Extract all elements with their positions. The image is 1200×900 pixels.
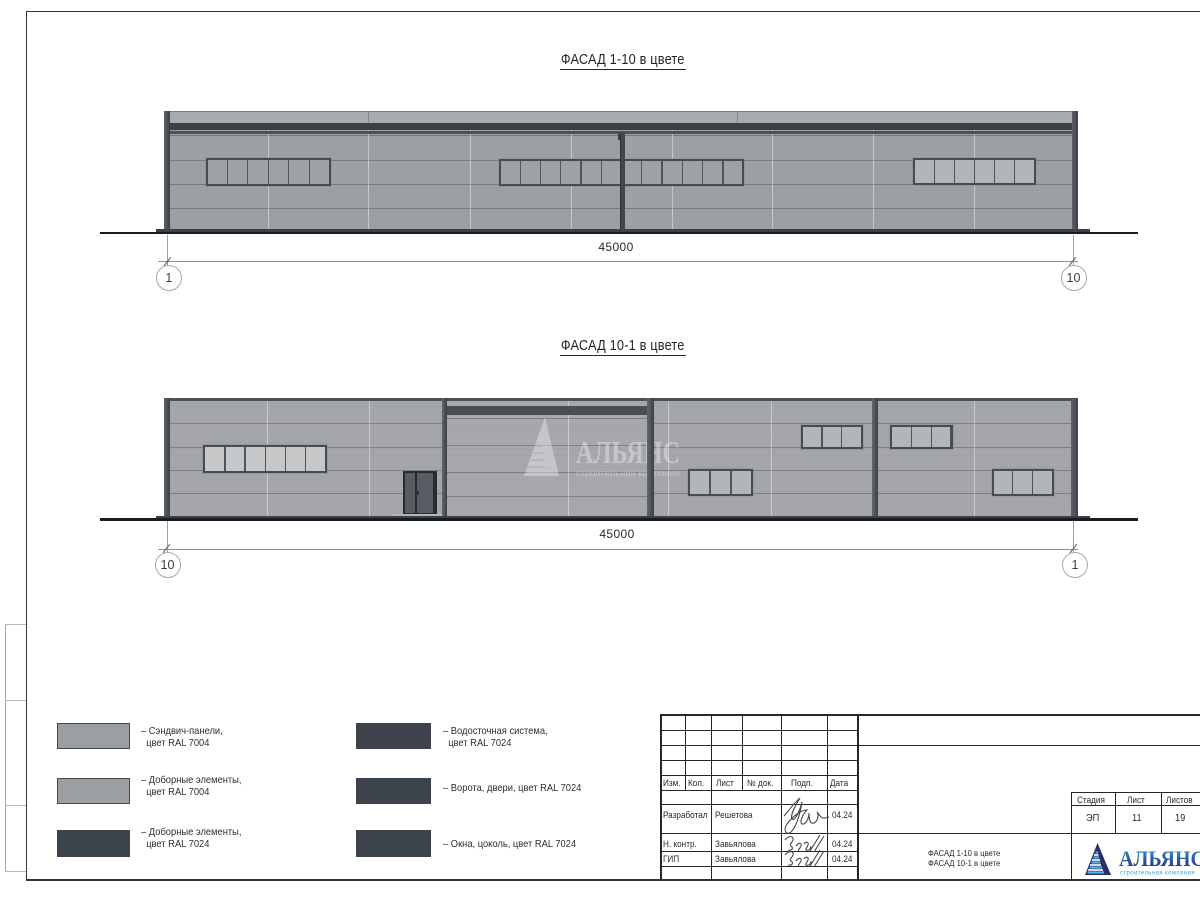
svg-text:строительная компания: строительная компания [1120,871,1195,877]
svg-text:АЛЬЯНС: АЛЬЯНС [1119,846,1200,871]
